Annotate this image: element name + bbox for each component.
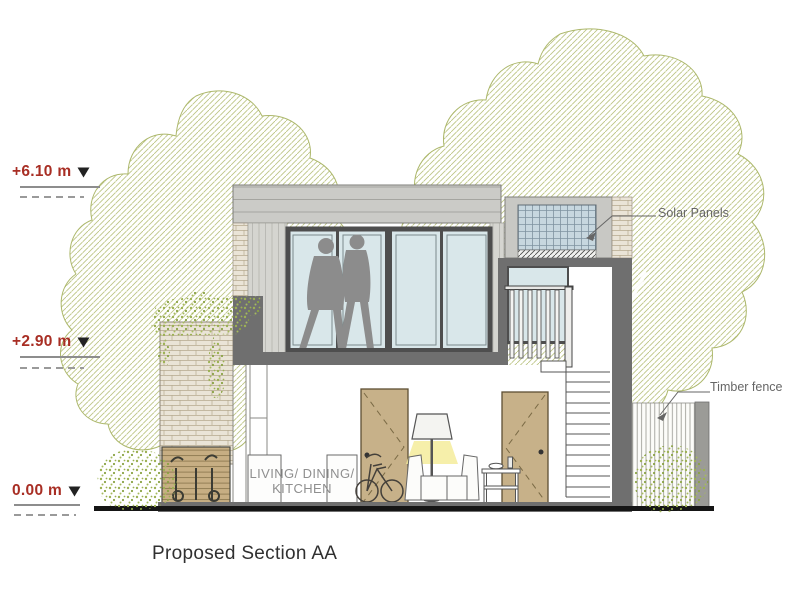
solar-panels-label: Solar Panels <box>658 206 729 220</box>
roof-fascia <box>233 185 501 223</box>
level-dashed-line <box>20 196 84 198</box>
level-marker-roof: +6.10 m <box>12 163 90 181</box>
room-label-line2: KITCHEN <box>246 481 358 496</box>
bowl <box>489 463 503 469</box>
level-datum-icon <box>77 167 90 178</box>
upper-brick-strip <box>233 223 248 298</box>
level-datum-icon <box>68 486 81 497</box>
level-line <box>20 356 100 358</box>
right-bush <box>634 445 708 512</box>
solar-panel-roof <box>505 197 632 258</box>
right-cut-wall <box>612 258 632 510</box>
first-floor-slab <box>233 352 507 365</box>
stairwell-wall-bg <box>568 267 612 365</box>
window-sill <box>286 348 492 352</box>
bottle <box>508 457 513 468</box>
mullion-right <box>440 229 443 351</box>
solar-panels <box>518 205 596 250</box>
level-dashed-line <box>14 514 76 516</box>
level-datum-icon <box>77 337 90 348</box>
glazed-sliding-doors <box>286 229 492 352</box>
room-label-line1: LIVING/ DINING/ <box>246 466 358 481</box>
ground-line <box>94 506 714 511</box>
timber-fence-label: Timber fence <box>710 380 782 394</box>
mullion-center <box>385 229 392 351</box>
door-right-handle <box>539 450 544 455</box>
drawing-title: Proposed Section AA <box>152 543 337 565</box>
room-label: LIVING/ DINING/ KITCHEN <box>246 466 358 496</box>
level-label: +2.90 m <box>12 333 71 351</box>
level-label: +6.10 m <box>12 163 71 181</box>
solar-hatch-strip <box>518 250 596 258</box>
level-marker-ground: 0.00 m <box>12 482 81 500</box>
newel-post <box>565 287 572 367</box>
stair-jamb <box>498 258 508 365</box>
section-drawing <box>0 0 794 600</box>
level-marker-first-floor: +2.90 m <box>12 333 90 351</box>
lamp-shade <box>412 414 452 439</box>
stair-slab-strip <box>498 258 632 267</box>
level-label: 0.00 m <box>12 482 62 500</box>
level-line <box>14 504 80 506</box>
garden-brick-pier <box>160 322 233 464</box>
level-dashed-line <box>20 367 84 369</box>
parapet-brick <box>612 197 632 258</box>
level-line <box>20 186 100 188</box>
drawing-canvas: +6.10 m +2.90 m 0.00 m Solar Panels Timb… <box>0 0 794 600</box>
